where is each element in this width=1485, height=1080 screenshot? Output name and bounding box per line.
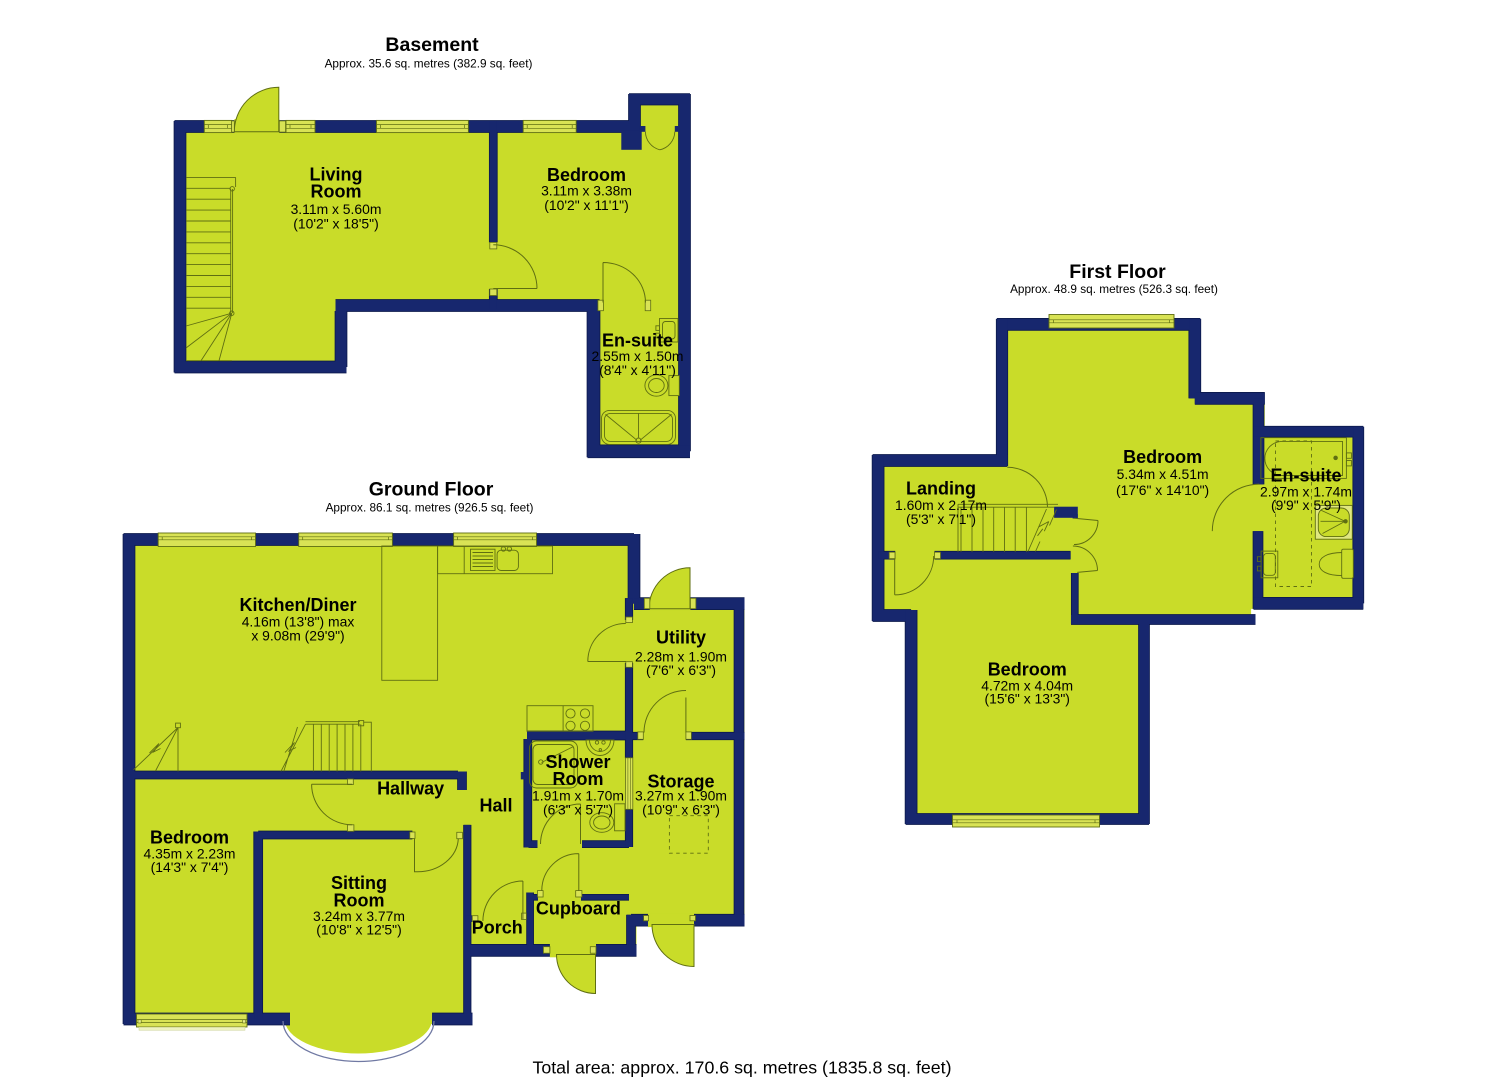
svg-text:Utility: Utility xyxy=(656,628,706,648)
svg-text:(10'8" x 12'5"): (10'8" x 12'5") xyxy=(316,922,401,938)
svg-text:Kitchen/Diner: Kitchen/Diner xyxy=(239,595,356,615)
svg-text:Room: Room xyxy=(311,182,362,202)
svg-text:Bedroom: Bedroom xyxy=(1123,447,1202,467)
svg-text:Approx. 86.1 sq. metres (926.5: Approx. 86.1 sq. metres (926.5 sq. feet) xyxy=(326,501,534,515)
svg-text:Ground Floor: Ground Floor xyxy=(369,479,494,501)
svg-text:(17'6" x 14'10"): (17'6" x 14'10") xyxy=(1116,482,1209,498)
svg-text:Landing: Landing xyxy=(906,479,976,499)
svg-text:(10'2" x 18'5"): (10'2" x 18'5") xyxy=(293,216,378,232)
svg-text:En-suite: En-suite xyxy=(1270,466,1341,486)
svg-text:Bedroom: Bedroom xyxy=(988,660,1067,680)
svg-text:First Floor: First Floor xyxy=(1069,261,1166,283)
svg-text:Hall: Hall xyxy=(479,796,512,816)
svg-text:(5'3" x 7'1"): (5'3" x 7'1") xyxy=(906,511,976,527)
svg-text:(9'9" x 5'9"): (9'9" x 5'9") xyxy=(1271,497,1341,513)
svg-text:Room: Room xyxy=(553,769,604,789)
svg-text:(7'6" x 6'3"): (7'6" x 6'3") xyxy=(646,662,716,678)
svg-text:5.34m x 4.51m: 5.34m x 4.51m xyxy=(1117,466,1209,482)
svg-text:Hallway: Hallway xyxy=(377,779,444,799)
svg-text:Porch: Porch xyxy=(472,918,523,938)
svg-text:(10'2" x 11'1"): (10'2" x 11'1") xyxy=(544,197,628,213)
svg-text:Approx. 48.9 sq. metres (526.3: Approx. 48.9 sq. metres (526.3 sq. feet) xyxy=(1010,282,1218,296)
svg-text:(8'4" x 4'11"): (8'4" x 4'11") xyxy=(599,362,676,378)
svg-text:Approx. 35.6 sq. metres (382.9: Approx. 35.6 sq. metres (382.9 sq. feet) xyxy=(325,57,533,71)
svg-text:Basement: Basement xyxy=(385,34,479,56)
svg-text:(10'9" x 6'3"): (10'9" x 6'3") xyxy=(642,802,720,818)
svg-text:x 9.08m (29'9"): x 9.08m (29'9") xyxy=(251,628,344,644)
svg-text:(6'3" x 5'7"): (6'3" x 5'7") xyxy=(543,802,613,818)
svg-text:(14'3" x 7'4"): (14'3" x 7'4") xyxy=(151,859,229,875)
svg-text:(15'6" x 13'3"): (15'6" x 13'3") xyxy=(984,691,1069,707)
svg-text:Cupboard: Cupboard xyxy=(536,899,621,919)
svg-text:Total area: approx. 170.6 sq.: Total area: approx. 170.6 sq. metres (18… xyxy=(532,1058,951,1078)
